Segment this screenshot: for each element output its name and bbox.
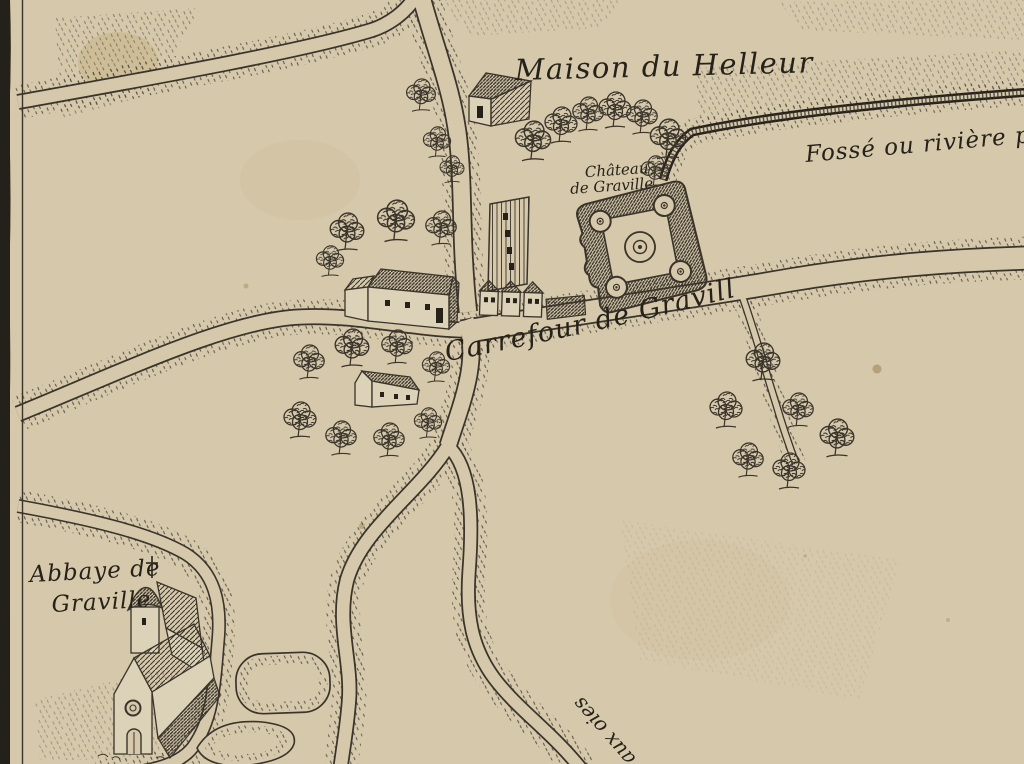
hamlet-house — [355, 371, 419, 407]
long-farm-building — [345, 269, 459, 329]
engraved-map: Maison du Helleur Fossé ou rivière po Ch… — [0, 0, 1024, 764]
label-abbaye-line2: Graville — [51, 587, 152, 618]
tall-farm-building — [488, 197, 529, 291]
map-canvas: Maison du Helleur Fossé ou rivière po Ch… — [0, 0, 1024, 764]
